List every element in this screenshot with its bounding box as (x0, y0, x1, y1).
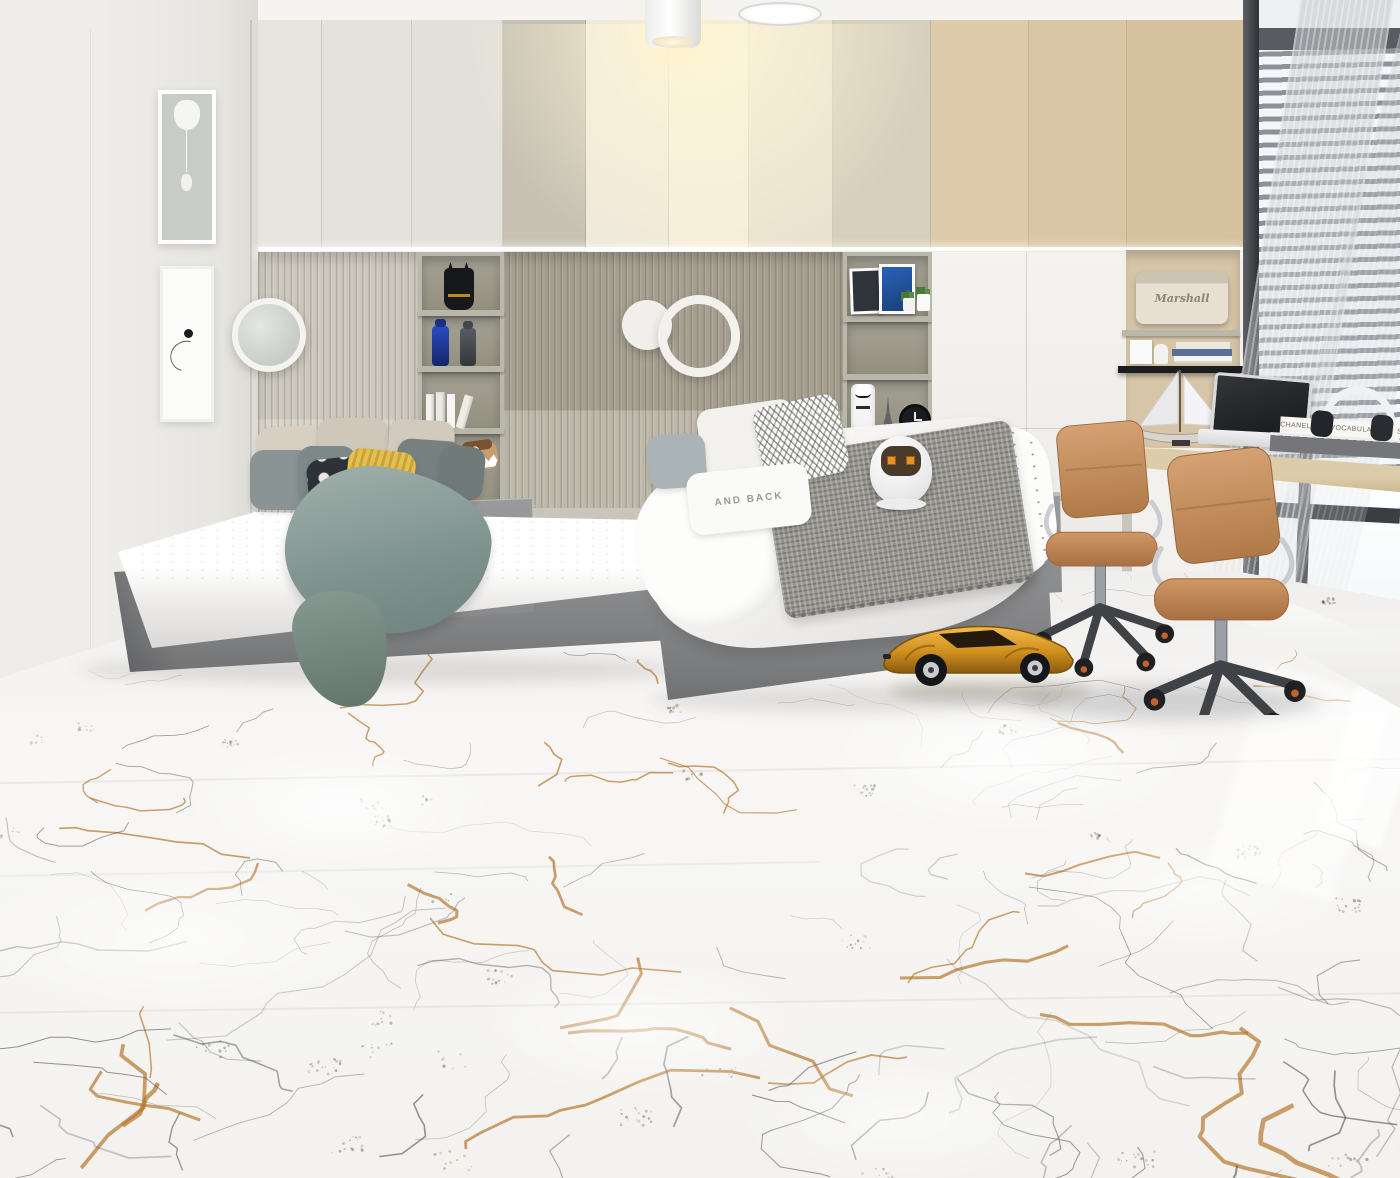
shelf-board (843, 316, 932, 322)
office-chair-front (1144, 445, 1306, 715)
recessed-light (738, 2, 822, 26)
art-figure (181, 174, 192, 191)
shelf-board (418, 310, 504, 316)
cabinet-door (833, 20, 931, 252)
potted-plant (917, 294, 930, 311)
wall-panel-molding (90, 30, 91, 670)
art-string (186, 130, 187, 172)
toy-gold-sports-car[interactable] (875, 598, 1090, 698)
cabinet-door (258, 20, 322, 252)
art-moon (174, 100, 200, 130)
speaker: Marshall (1136, 272, 1228, 324)
toy-batman-figure (444, 268, 474, 310)
cabinet-door-wood (1127, 20, 1246, 252)
stormtrooper-helmet (855, 384, 871, 398)
robot-head (435, 319, 446, 327)
cabinet-door (586, 20, 669, 252)
cubby (847, 322, 928, 374)
circle-wall-decor-ring (658, 295, 740, 377)
baby-monitor-camera (868, 436, 934, 512)
wall-art-frame-top (158, 90, 216, 244)
robot-head (463, 321, 473, 329)
book-flat (1176, 342, 1230, 349)
art-line (165, 335, 208, 377)
book-spine-leaning (455, 394, 473, 429)
white-cylinder (1154, 344, 1168, 364)
downlight-lens (652, 36, 694, 48)
book-flat (1174, 356, 1232, 363)
round-mirror (232, 298, 306, 372)
stormtrooper-torso-line (856, 406, 870, 409)
book-flat (1172, 349, 1232, 356)
toy-robot-figure-blue (432, 326, 449, 366)
shelf-board (418, 366, 504, 372)
headphone-cup (1370, 414, 1395, 442)
cylinder-downlight (645, 0, 701, 48)
monitor-base (876, 498, 926, 510)
shelf-board (843, 374, 932, 380)
toy-robot-figure-gray (460, 328, 476, 366)
potted-plant (903, 298, 915, 311)
white-box (1130, 340, 1152, 364)
art-dot (184, 329, 193, 338)
cabinet-door-wood (931, 20, 1029, 252)
wall-art-frame-bottom (160, 266, 214, 422)
batman-belt (448, 294, 470, 297)
upper-cabinets (258, 20, 1246, 252)
stacked-books (1172, 342, 1234, 366)
cabinet-door (503, 20, 586, 252)
photo-frame-dark (849, 267, 883, 314)
monitor-eye (887, 456, 896, 465)
cabinet-door (749, 20, 833, 252)
bedroom-scene: Marshall (0, 0, 1400, 1178)
pillow-text: AND BACK (685, 462, 813, 536)
speaker-logo: Marshall (1136, 292, 1228, 305)
shelf-board (1122, 330, 1240, 336)
cabinet-door (322, 20, 412, 252)
cabinet-door-wood (1029, 20, 1127, 252)
pillow-text-label: AND BACK (714, 490, 784, 508)
cabinet-door (669, 20, 749, 252)
led-strip (258, 247, 1244, 251)
cabinet-door (412, 20, 502, 252)
monitor-eye (906, 456, 915, 465)
